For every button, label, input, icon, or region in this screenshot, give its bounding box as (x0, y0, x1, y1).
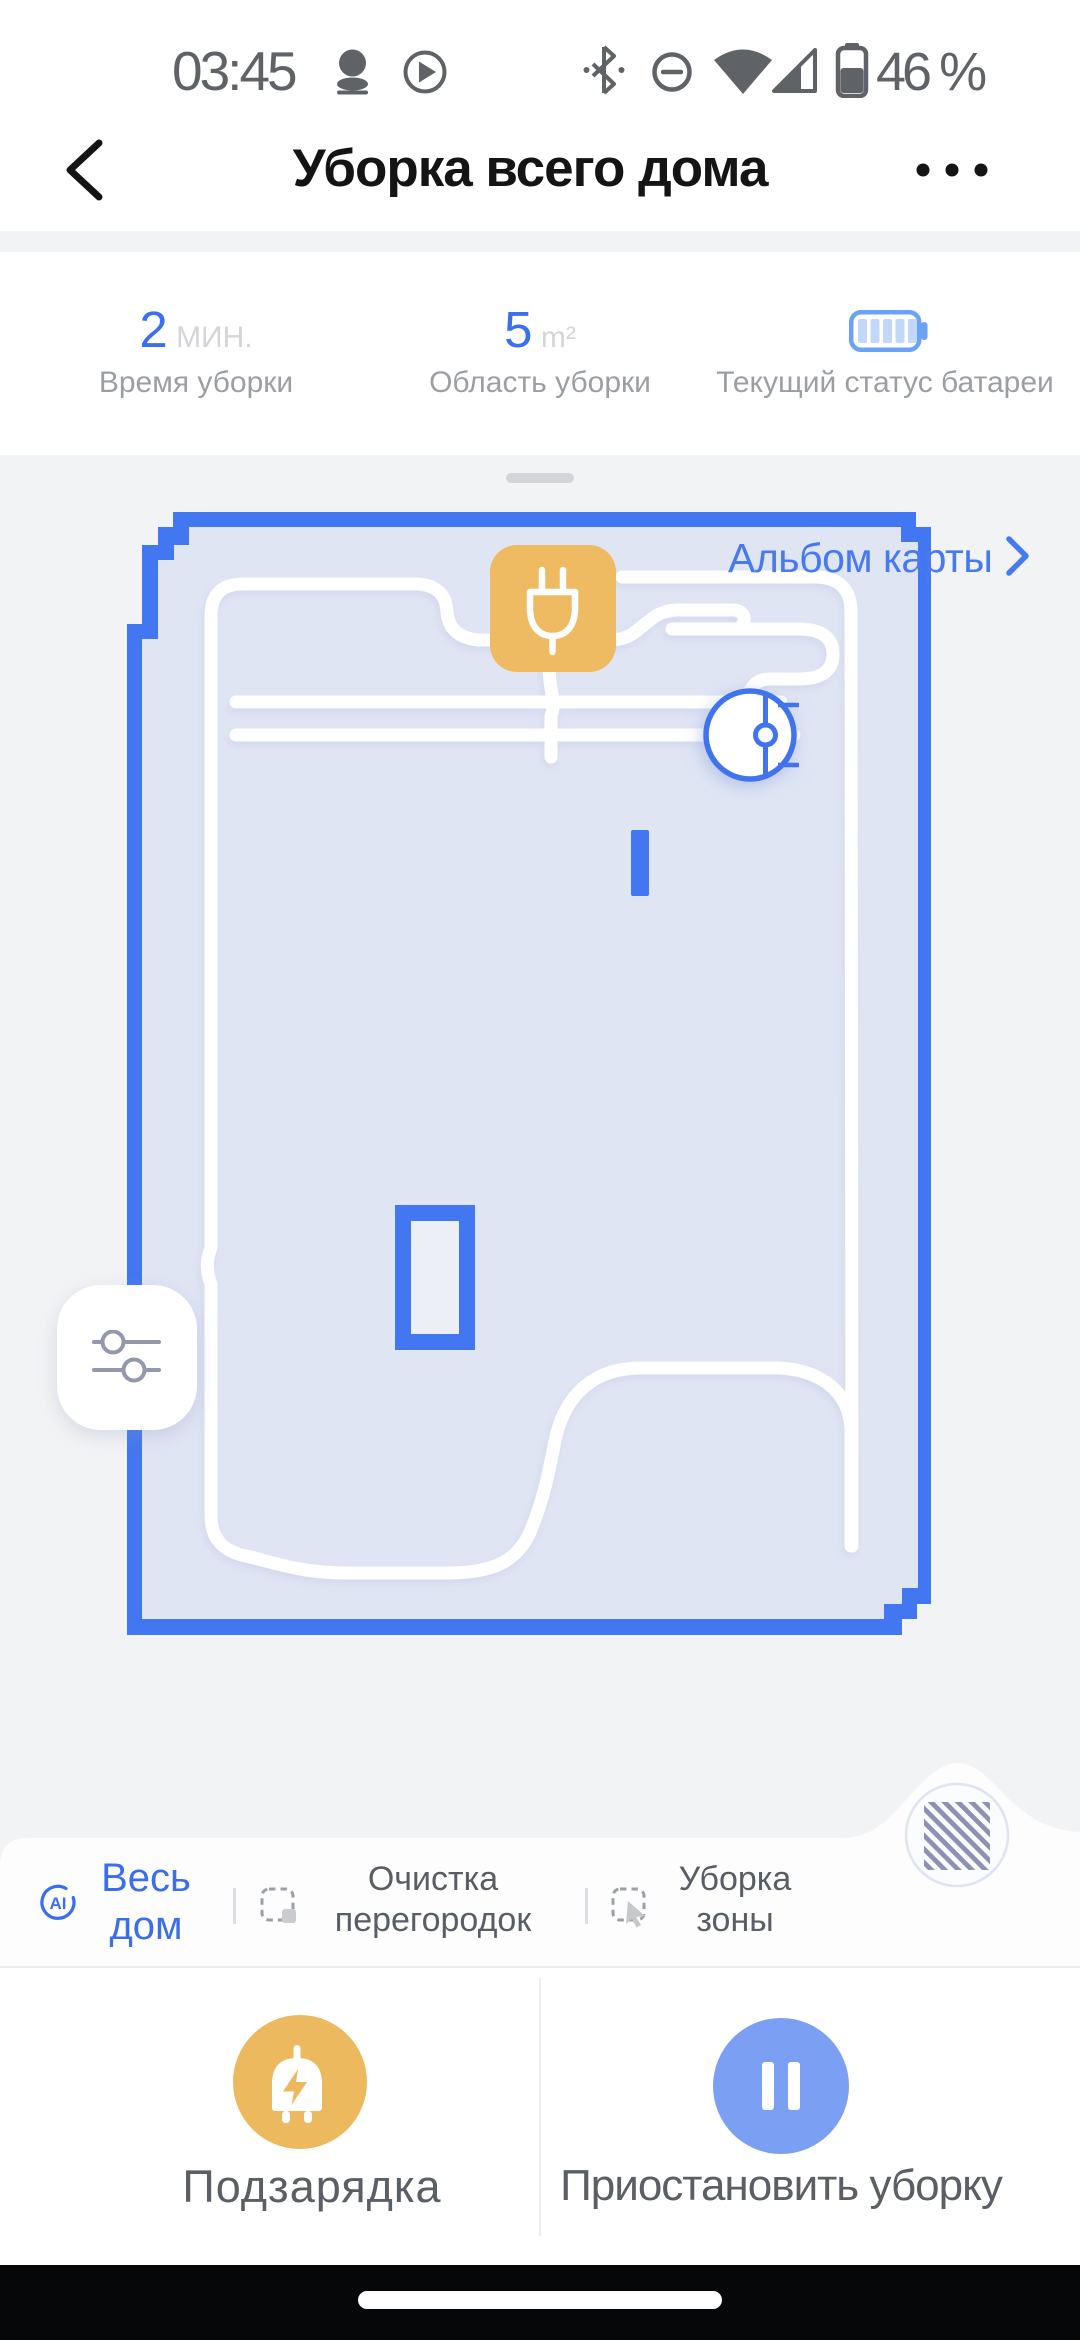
svg-text:AI: AI (50, 1894, 67, 1913)
